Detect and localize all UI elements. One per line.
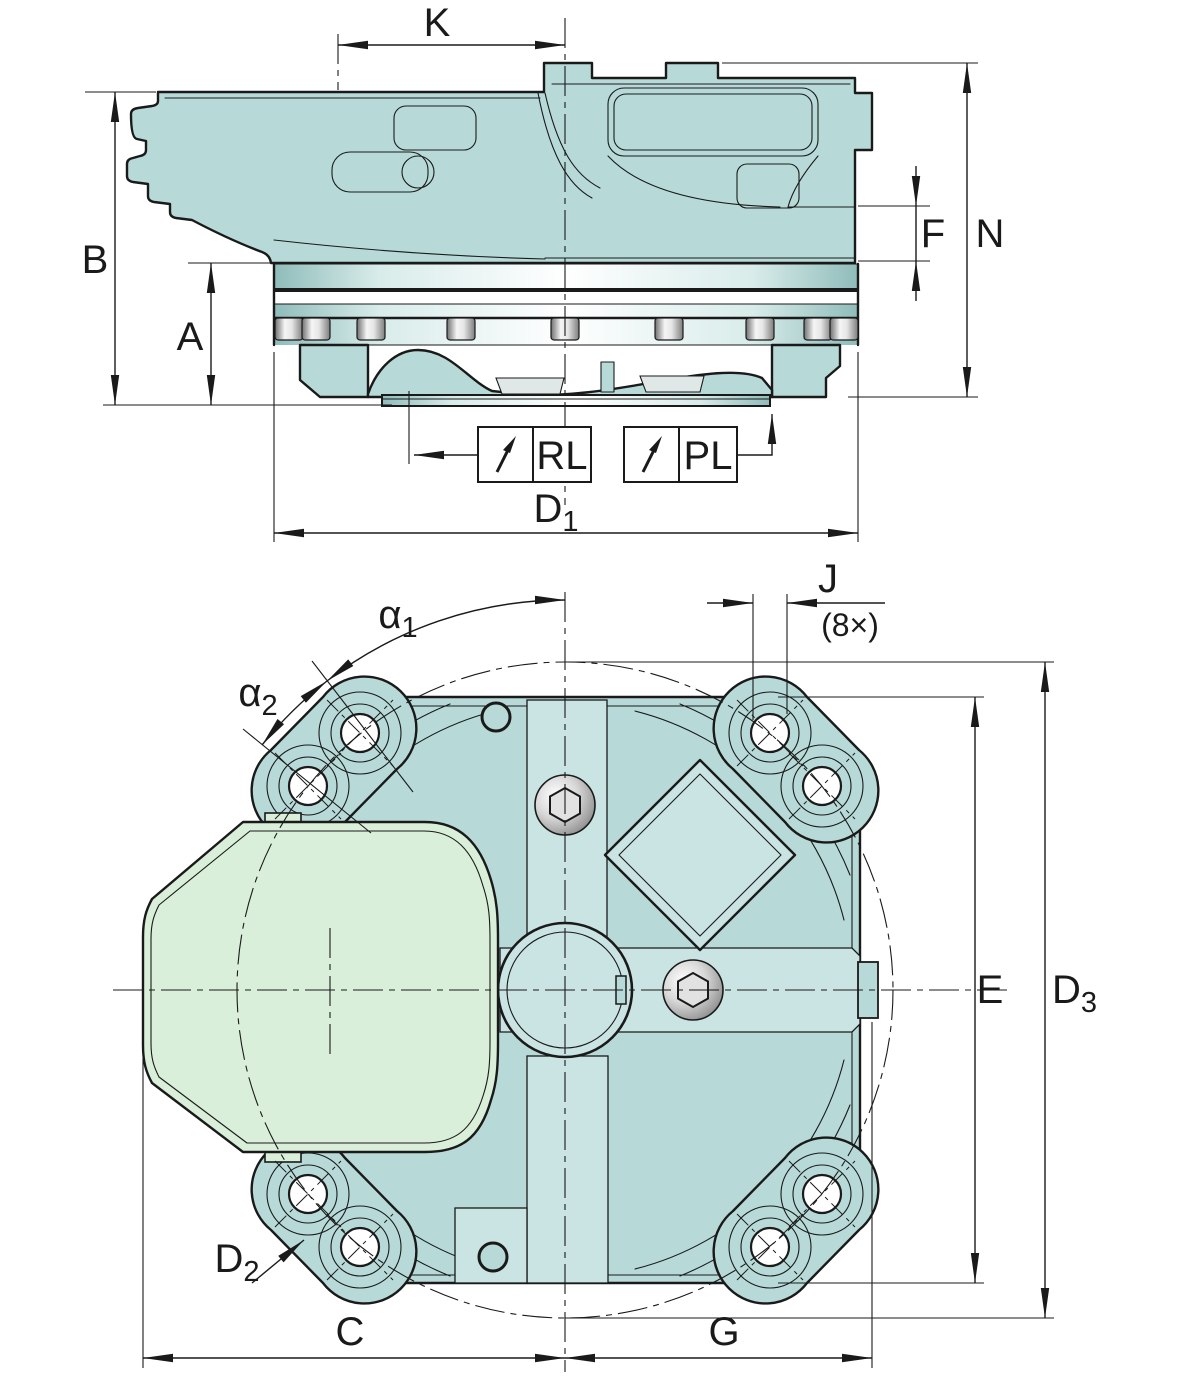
dimension-label-alpha1: α1 <box>378 593 417 644</box>
dimension-label-alpha2: α2 <box>238 671 277 722</box>
dimension-label-D3: D3 <box>1052 968 1097 1019</box>
dimension-K: K <box>338 1 565 90</box>
bolt-heads <box>275 318 858 340</box>
dimension-label-J-count: (8×) <box>821 607 879 643</box>
dimension-label-B: B <box>82 238 109 282</box>
dimension-label-C: C <box>336 1310 365 1354</box>
dimension-label-N: N <box>976 212 1005 256</box>
pin-hole <box>482 703 510 731</box>
port-label-PL: PL <box>624 414 772 482</box>
dimension-label-K: K <box>424 1 451 45</box>
upper-body <box>127 63 872 263</box>
dimension-label-F: F <box>921 212 945 256</box>
dimension-label-D2: D2 <box>214 1237 259 1288</box>
front-view: α1 α2 J (8×) E D3 <box>113 557 1097 1372</box>
dimension-label-G: G <box>708 1310 739 1354</box>
dimension-label-D1: D1 <box>533 487 578 538</box>
dimension-label-A: A <box>177 315 204 359</box>
dimension-F: F <box>858 166 945 301</box>
drawing-page: K B A F N <box>0 0 1200 1380</box>
side-section-view: K B A F N <box>82 1 1005 542</box>
dimension-label-J: J <box>818 557 838 601</box>
dimension-label-E: E <box>977 968 1004 1012</box>
technical-drawing: K B A F N <box>0 0 1200 1380</box>
port-label-PL-text: PL <box>684 434 733 478</box>
pin-hole <box>479 1243 507 1271</box>
dimension-A: A <box>177 263 272 405</box>
green-cover <box>143 813 498 1162</box>
lower-housing <box>300 345 840 406</box>
port-label-RL-text: RL <box>536 434 587 478</box>
